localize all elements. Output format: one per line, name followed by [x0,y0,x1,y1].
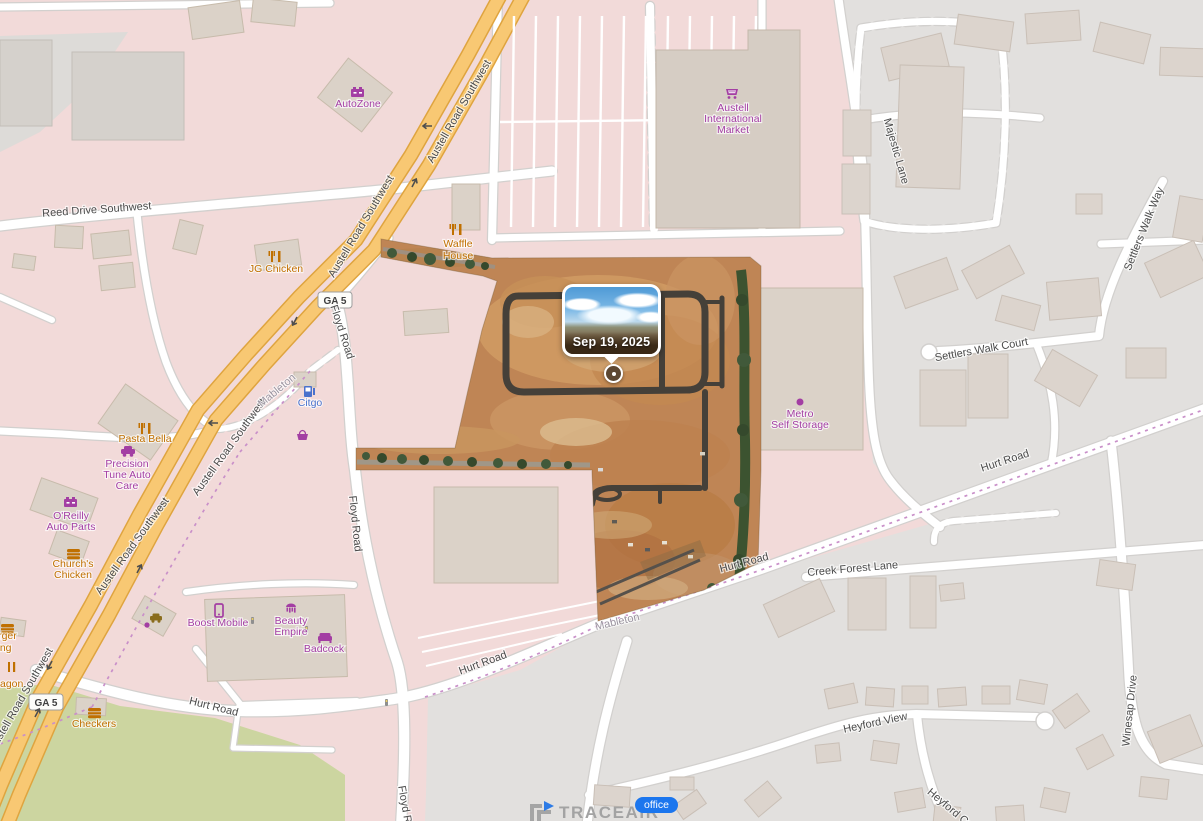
poi-label: Chicken [54,569,92,581]
burger-icon [88,708,101,718]
building [939,583,965,601]
equipment-speck [700,452,705,455]
equipment-speck [688,555,693,558]
equipment-speck [598,468,603,471]
building [815,743,841,763]
road [650,6,654,229]
tree [387,248,397,258]
poi-label: Care [116,480,139,492]
building [251,0,297,26]
tree [377,453,387,463]
office-badge[interactable]: office [635,797,678,813]
poi-label: Empire [274,626,307,638]
tree [541,459,551,469]
dirt-patch [540,418,612,446]
building [434,487,558,583]
poi-label: Checkers [72,718,116,730]
traffic-signal-icon [252,618,254,620]
building [99,262,135,290]
building [1126,348,1166,378]
building [910,576,936,628]
culdesac-bulb [1036,712,1054,730]
tree [443,456,453,466]
tree [407,252,417,262]
tree [736,294,748,306]
equipment-speck [645,548,650,551]
route-shield-label: GA 5 [35,698,58,709]
tree [481,262,489,270]
site-marker[interactable] [604,364,623,383]
poi-label: JG Chicken [249,263,303,275]
tree [424,253,436,265]
tree [564,461,572,469]
building [1016,680,1047,705]
building [91,230,131,259]
equipment-speck [628,543,633,546]
poi-label: Citgo [298,397,323,409]
building [865,687,894,707]
map-canvas[interactable]: GA 5 GA 5 Reed Drive Southwest Austell R… [0,0,1203,821]
building [843,110,871,156]
poi-label: Boost Mobile [188,617,249,629]
poi-label: Pasta Bella [118,433,171,445]
building [968,354,1008,418]
equipment-speck [612,520,617,523]
poi-label: House [443,250,474,262]
poi-label: Auto Parts [46,521,95,533]
building [12,254,36,271]
building [871,740,900,763]
building [842,164,870,214]
building [848,578,886,630]
building [1046,278,1101,320]
building [937,687,966,707]
poi-dot-icon [144,622,149,627]
building [1096,560,1135,591]
snapshot-thumbnail: Sep 19, 2025 [565,287,658,354]
tree [467,457,477,467]
storage-dot-icon [797,399,804,406]
building [982,686,1010,704]
equipment-speck [662,541,667,544]
map-arrow-icon [544,801,554,811]
snapshot-popup[interactable]: Sep 19, 2025 [562,284,661,357]
tree [362,452,370,460]
tree [419,455,429,465]
building [0,40,52,126]
building [894,788,925,813]
building [920,370,966,426]
building [995,805,1024,821]
snapshot-date: Sep 19, 2025 [565,332,658,354]
building [403,308,449,335]
tree [734,493,748,507]
dirt-patch [502,306,554,338]
poi-label: King [0,642,12,654]
poi-label: Burger [0,630,17,642]
poi-label: AutoZone [335,98,381,110]
building [54,225,83,248]
tree [493,458,503,468]
poi-label: Market [717,124,749,136]
building [188,1,244,40]
traffic-signal-icon [386,700,388,702]
poi-label: Badcock [304,643,345,655]
tree [397,454,407,464]
building [1139,777,1169,800]
marker-dot [612,372,616,376]
tree [737,424,749,436]
poi-label: Waffle [443,238,472,250]
tree [737,353,751,367]
building [1160,47,1203,77]
building [670,777,694,790]
building [452,184,480,230]
poi-label: agon [0,678,24,690]
building [1076,194,1102,214]
building [902,686,928,704]
tree [517,459,527,469]
poi-label: Self Storage [771,419,829,431]
building [1025,10,1081,44]
building [72,52,184,140]
